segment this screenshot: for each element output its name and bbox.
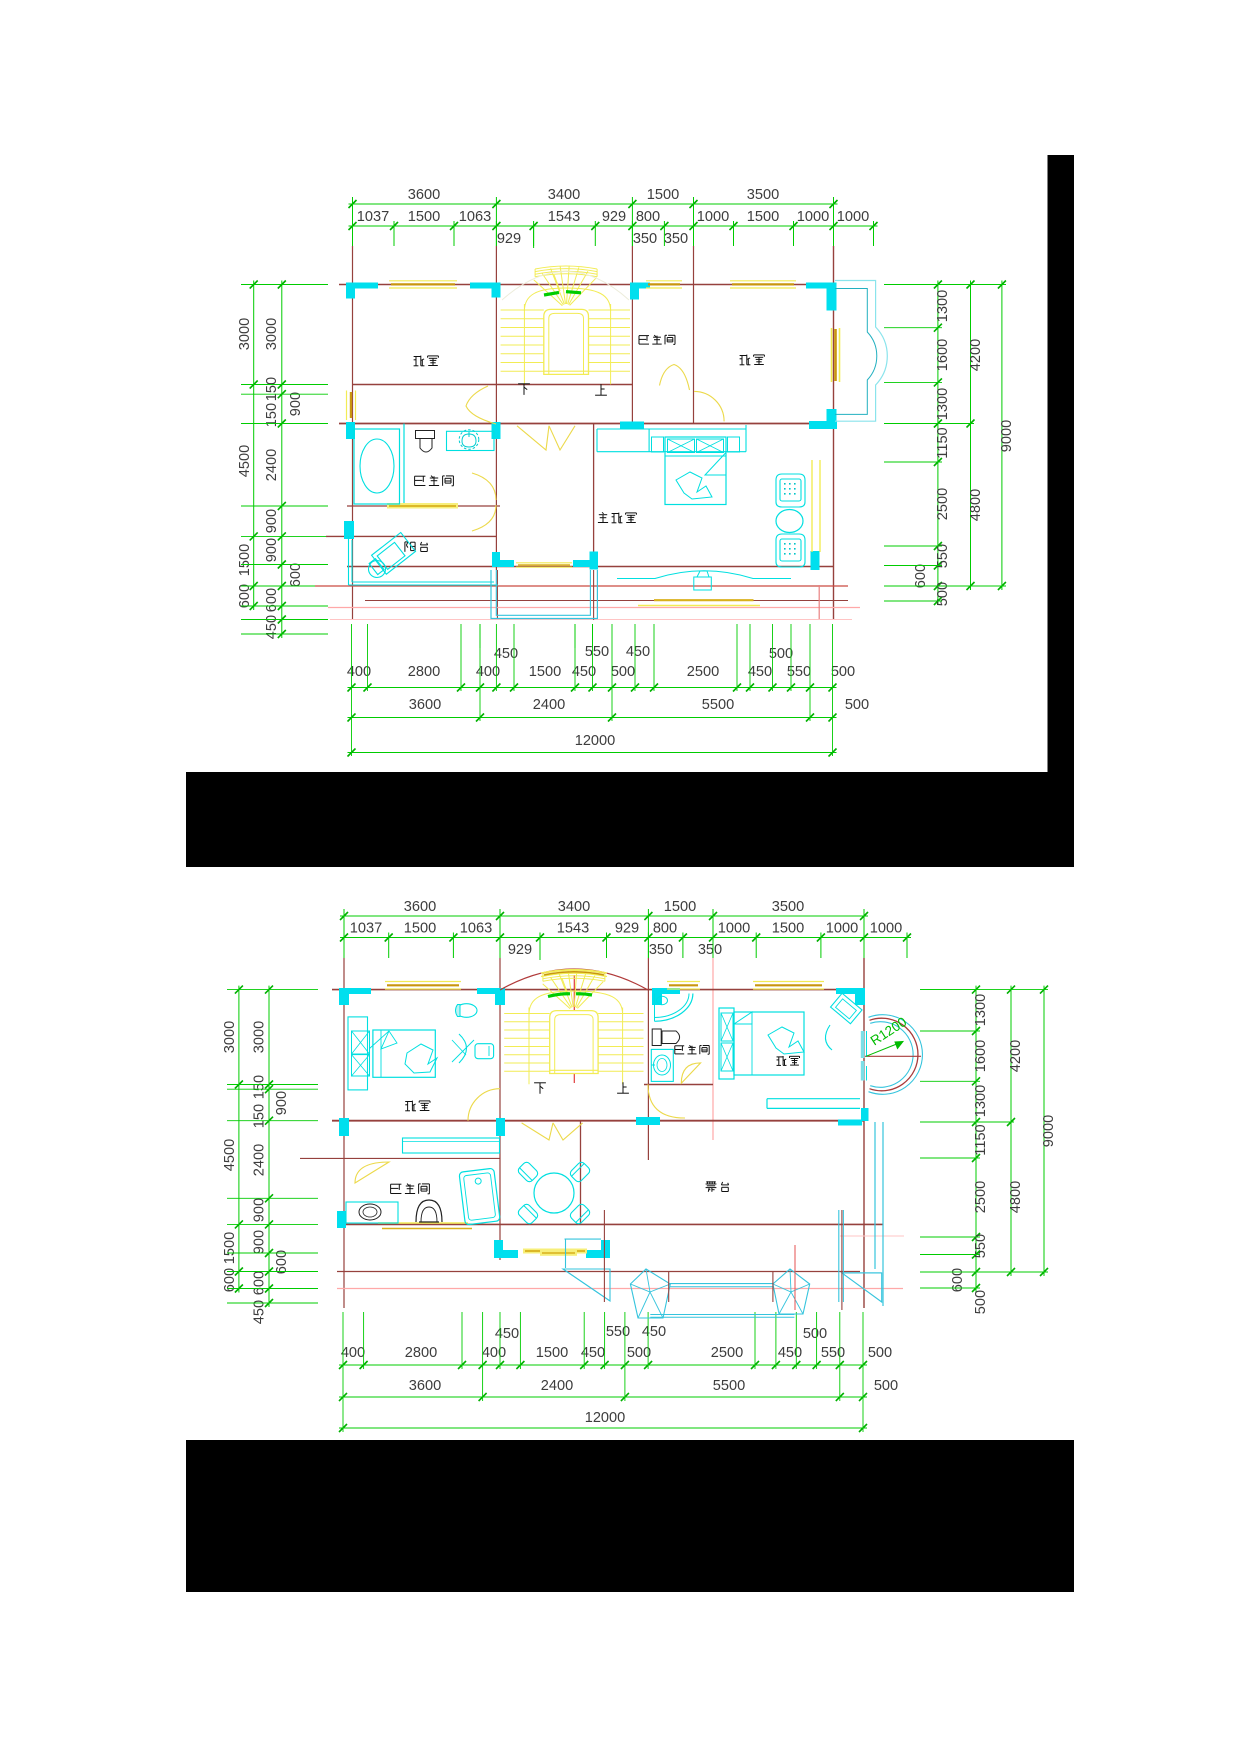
svg-text:2800: 2800 — [405, 1345, 437, 1361]
svg-text:1543: 1543 — [548, 209, 580, 225]
svg-text:929: 929 — [508, 942, 532, 958]
svg-text:1500: 1500 — [772, 921, 804, 937]
svg-text:929: 929 — [615, 921, 639, 937]
svg-text:550: 550 — [606, 1324, 630, 1340]
svg-text:3500: 3500 — [747, 187, 779, 203]
svg-text:1037: 1037 — [350, 921, 382, 937]
svg-text:500: 500 — [935, 582, 951, 606]
svg-text:5500: 5500 — [713, 1378, 745, 1394]
svg-text:3400: 3400 — [558, 899, 590, 915]
svg-text:2500: 2500 — [973, 1181, 989, 1213]
svg-text:400: 400 — [482, 1345, 506, 1361]
svg-text:350: 350 — [698, 942, 722, 958]
svg-text:1000: 1000 — [870, 921, 902, 937]
svg-text:1500: 1500 — [237, 544, 253, 576]
svg-text:450: 450 — [252, 1300, 268, 1324]
svg-text:600: 600 — [950, 1268, 966, 1292]
svg-text:900: 900 — [288, 392, 304, 416]
svg-text:2500: 2500 — [711, 1345, 743, 1361]
svg-text:600: 600 — [264, 588, 280, 612]
svg-text:1150: 1150 — [935, 427, 951, 458]
svg-text:400: 400 — [341, 1345, 365, 1361]
svg-text:3000: 3000 — [222, 1021, 238, 1053]
svg-text:1150: 1150 — [973, 1124, 989, 1155]
svg-text:1500: 1500 — [647, 187, 679, 203]
svg-text:550: 550 — [787, 664, 811, 680]
svg-text:4500: 4500 — [222, 1139, 238, 1171]
svg-text:3000: 3000 — [252, 1021, 268, 1053]
svg-text:800: 800 — [636, 209, 660, 225]
svg-text:1500: 1500 — [404, 921, 436, 937]
svg-text:500: 500 — [611, 664, 635, 680]
svg-text:500: 500 — [627, 1345, 651, 1361]
svg-text:1543: 1543 — [557, 921, 589, 937]
svg-text:2400: 2400 — [541, 1378, 573, 1394]
svg-text:929: 929 — [602, 209, 626, 225]
svg-text:3400: 3400 — [548, 187, 580, 203]
svg-text:1000: 1000 — [797, 209, 829, 225]
svg-text:4800: 4800 — [1008, 1181, 1024, 1213]
svg-text:1500: 1500 — [536, 1345, 568, 1361]
svg-text:150: 150 — [264, 377, 280, 401]
svg-text:12000: 12000 — [585, 1410, 626, 1426]
svg-text:1300: 1300 — [935, 290, 951, 322]
svg-text:550: 550 — [935, 544, 951, 568]
svg-text:1000: 1000 — [718, 921, 750, 937]
svg-text:1063: 1063 — [459, 209, 491, 225]
svg-text:2400: 2400 — [533, 697, 565, 713]
svg-text:1500: 1500 — [747, 209, 779, 225]
svg-text:1000: 1000 — [837, 209, 869, 225]
svg-text:600: 600 — [913, 564, 929, 588]
svg-text:500: 500 — [973, 1290, 989, 1314]
svg-text:450: 450 — [642, 1324, 666, 1340]
svg-text:500: 500 — [831, 664, 855, 680]
svg-text:900: 900 — [274, 1091, 290, 1115]
svg-text:600: 600 — [237, 584, 253, 608]
svg-text:550: 550 — [585, 644, 609, 660]
svg-text:900: 900 — [252, 1198, 268, 1222]
svg-text:9000: 9000 — [1041, 1115, 1057, 1147]
svg-text:500: 500 — [874, 1378, 898, 1394]
svg-text:900: 900 — [264, 509, 280, 533]
svg-text:3600: 3600 — [409, 1378, 441, 1394]
svg-text:1500: 1500 — [408, 209, 440, 225]
svg-text:1000: 1000 — [697, 209, 729, 225]
svg-text:350: 350 — [649, 942, 673, 958]
svg-text:1600: 1600 — [973, 1040, 989, 1072]
svg-text:1500: 1500 — [222, 1232, 238, 1264]
svg-text:3500: 3500 — [772, 899, 804, 915]
svg-text:500: 500 — [868, 1345, 892, 1361]
svg-text:3600: 3600 — [404, 899, 436, 915]
svg-text:1500: 1500 — [529, 664, 561, 680]
svg-text:450: 450 — [748, 664, 772, 680]
svg-text:4200: 4200 — [968, 339, 984, 371]
svg-text:9000: 9000 — [999, 420, 1015, 452]
svg-text:2400: 2400 — [264, 449, 280, 481]
svg-text:450: 450 — [626, 644, 650, 660]
svg-text:450: 450 — [778, 1345, 802, 1361]
svg-text:150: 150 — [252, 1104, 268, 1128]
svg-text:450: 450 — [494, 646, 518, 662]
svg-text:600: 600 — [252, 1271, 268, 1295]
svg-text:3600: 3600 — [409, 697, 441, 713]
svg-text:1037: 1037 — [357, 209, 389, 225]
svg-text:1000: 1000 — [826, 921, 858, 937]
svg-text:450: 450 — [495, 1326, 519, 1342]
svg-text:3000: 3000 — [237, 318, 253, 350]
svg-text:900: 900 — [252, 1230, 268, 1254]
svg-text:3000: 3000 — [264, 318, 280, 350]
svg-text:1500: 1500 — [664, 899, 696, 915]
svg-text:4800: 4800 — [968, 489, 984, 521]
svg-text:12000: 12000 — [575, 733, 616, 749]
svg-text:1300: 1300 — [935, 388, 951, 420]
svg-text:5500: 5500 — [702, 697, 734, 713]
svg-text:4200: 4200 — [1008, 1040, 1024, 1072]
svg-text:800: 800 — [653, 921, 677, 937]
svg-text:2400: 2400 — [252, 1144, 268, 1176]
svg-text:500: 500 — [803, 1326, 827, 1342]
svg-text:600: 600 — [274, 1250, 290, 1274]
svg-text:2800: 2800 — [408, 664, 440, 680]
svg-text:600: 600 — [288, 563, 304, 587]
svg-text:4500: 4500 — [237, 445, 253, 477]
svg-text:1300: 1300 — [973, 1085, 989, 1117]
svg-text:350: 350 — [664, 231, 688, 247]
svg-text:150: 150 — [252, 1075, 268, 1099]
svg-text:1063: 1063 — [460, 921, 492, 937]
svg-text:500: 500 — [845, 697, 869, 713]
svg-text:450: 450 — [264, 615, 280, 639]
svg-text:929: 929 — [497, 231, 521, 247]
svg-text:350: 350 — [633, 231, 657, 247]
svg-text:900: 900 — [264, 538, 280, 562]
svg-text:550: 550 — [821, 1345, 845, 1361]
svg-text:2500: 2500 — [935, 488, 951, 520]
svg-text:3600: 3600 — [408, 187, 440, 203]
svg-text:1300: 1300 — [973, 994, 989, 1026]
svg-text:1600: 1600 — [935, 339, 951, 371]
svg-text:2500: 2500 — [687, 664, 719, 680]
